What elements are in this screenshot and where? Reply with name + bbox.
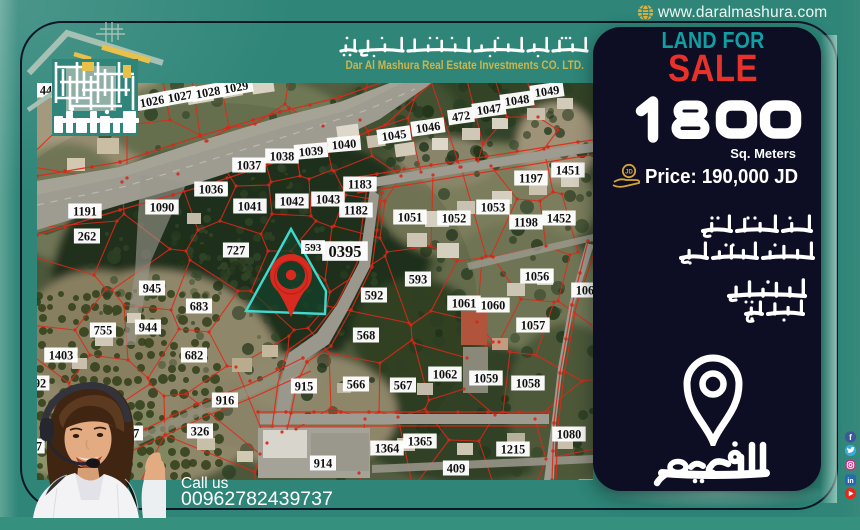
svg-text:f: f [849, 433, 852, 442]
svg-text:in: in [847, 478, 853, 485]
